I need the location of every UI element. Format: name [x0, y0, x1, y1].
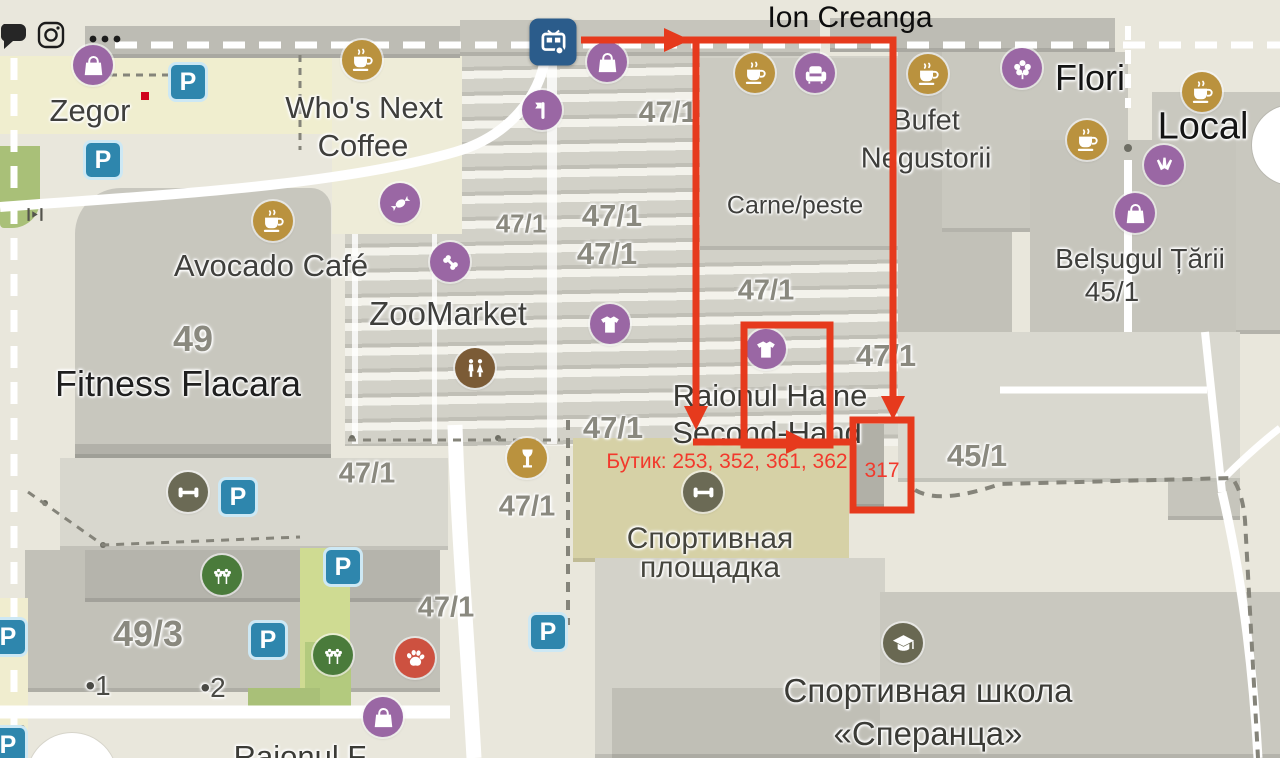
instagram-icon[interactable]: [37, 21, 65, 54]
route-main-line: [581, 40, 893, 398]
map-canvas[interactable]: Ion Creanga Бутик: 253, 352, 361, 362 31…: [0, 0, 1280, 758]
street-label: Ion Creanga: [767, 1, 932, 35]
highlight-rect-clothes: [744, 325, 830, 445]
speech-bubble-icon[interactable]: [0, 22, 38, 57]
ellipsis-icon[interactable]: [88, 31, 122, 49]
annotation-boutiques: Бутик: 253, 352, 361, 362: [606, 450, 847, 474]
annotation-unit-317: 317: [864, 459, 899, 483]
route-annotation: [0, 0, 1280, 758]
route-arrowheads: [664, 28, 905, 454]
